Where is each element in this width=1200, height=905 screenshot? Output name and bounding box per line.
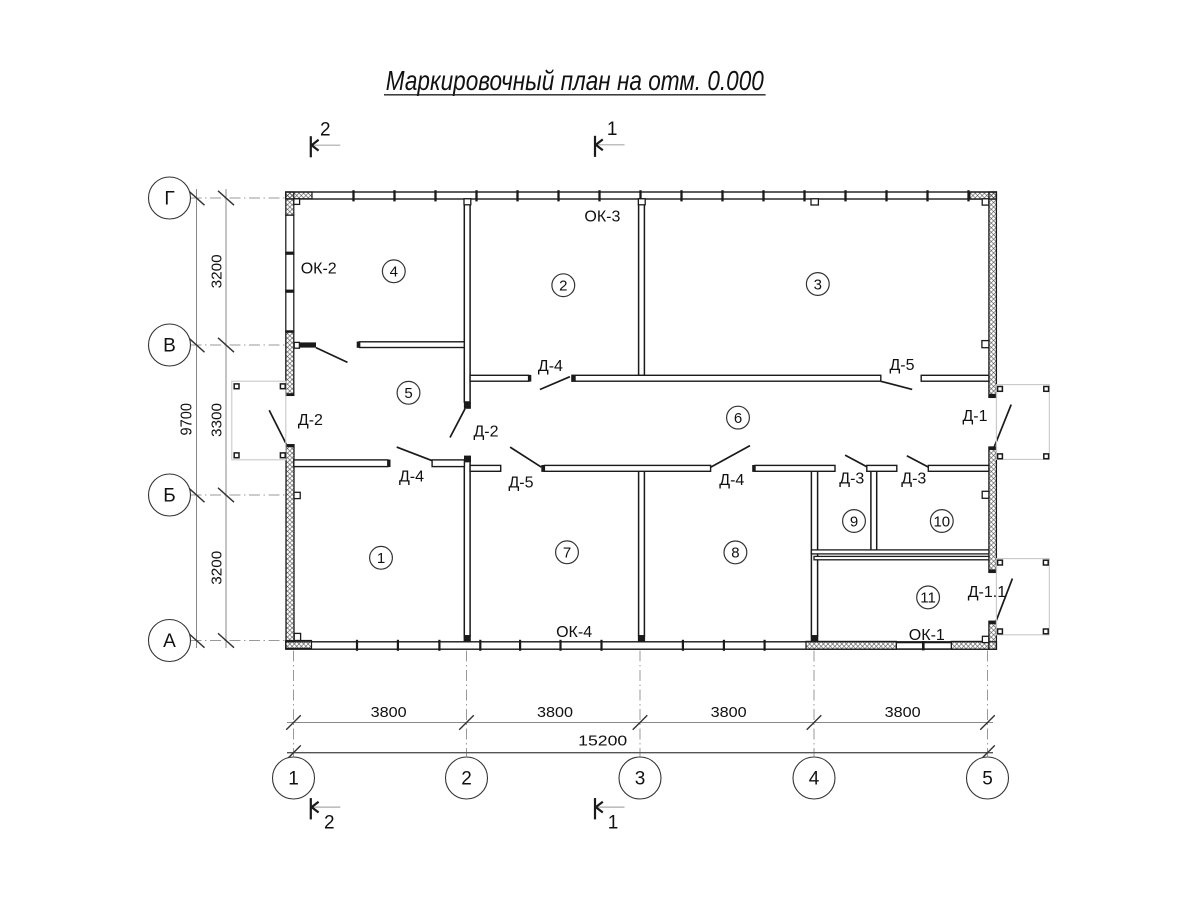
svg-text:11: 11 [920,590,936,607]
svg-text:2: 2 [324,813,335,834]
svg-text:Д-5: Д-5 [508,474,533,491]
svg-text:ОК-1: ОК-1 [909,627,945,644]
svg-text:ОК-4: ОК-4 [556,624,592,641]
svg-text:3200: 3200 [208,551,225,585]
svg-text:3300: 3300 [208,403,225,437]
svg-text:А: А [163,631,176,652]
svg-text:2: 2 [320,120,331,141]
svg-text:Д-4: Д-4 [399,468,424,485]
svg-text:Д-4: Д-4 [719,472,744,489]
svg-text:Д-2: Д-2 [473,424,498,441]
svg-text:1: 1 [608,813,619,834]
svg-text:3: 3 [635,769,646,790]
svg-text:Д-2: Д-2 [298,412,323,429]
svg-text:Маркировочный план на отм. 0.0: Маркировочный план на отм. 0.000 [386,65,764,96]
svg-text:10: 10 [933,513,950,530]
svg-text:15200: 15200 [578,733,627,750]
svg-text:2: 2 [559,278,567,295]
svg-text:8: 8 [731,545,739,562]
svg-text:Д-1: Д-1 [962,408,987,425]
svg-text:ОК-2: ОК-2 [301,260,337,277]
svg-text:4: 4 [390,264,398,281]
svg-text:Б: Б [163,486,175,507]
svg-text:5: 5 [982,769,993,790]
svg-text:ОК-3: ОК-3 [584,209,620,226]
svg-text:6: 6 [734,410,742,427]
svg-text:3800: 3800 [885,704,921,721]
svg-text:1: 1 [607,119,618,140]
svg-text:В: В [163,336,176,357]
svg-text:3800: 3800 [711,704,747,721]
svg-text:Д-4: Д-4 [538,358,563,375]
svg-text:1: 1 [377,550,385,567]
svg-text:4: 4 [809,769,820,790]
svg-text:3: 3 [814,276,822,293]
svg-text:Д-3: Д-3 [901,471,926,488]
svg-text:1: 1 [288,769,299,790]
svg-text:Д-5: Д-5 [889,357,914,374]
svg-text:3800: 3800 [371,704,407,721]
svg-text:Д-3: Д-3 [839,471,864,488]
svg-text:9700: 9700 [178,403,195,436]
svg-text:3800: 3800 [537,704,573,721]
svg-text:3200: 3200 [208,254,225,288]
svg-text:Г: Г [164,189,174,210]
svg-text:7: 7 [563,545,571,562]
svg-text:Д-1.1: Д-1.1 [968,584,1007,601]
svg-text:2: 2 [461,769,472,790]
svg-text:5: 5 [404,385,412,402]
svg-text:9: 9 [850,513,858,530]
